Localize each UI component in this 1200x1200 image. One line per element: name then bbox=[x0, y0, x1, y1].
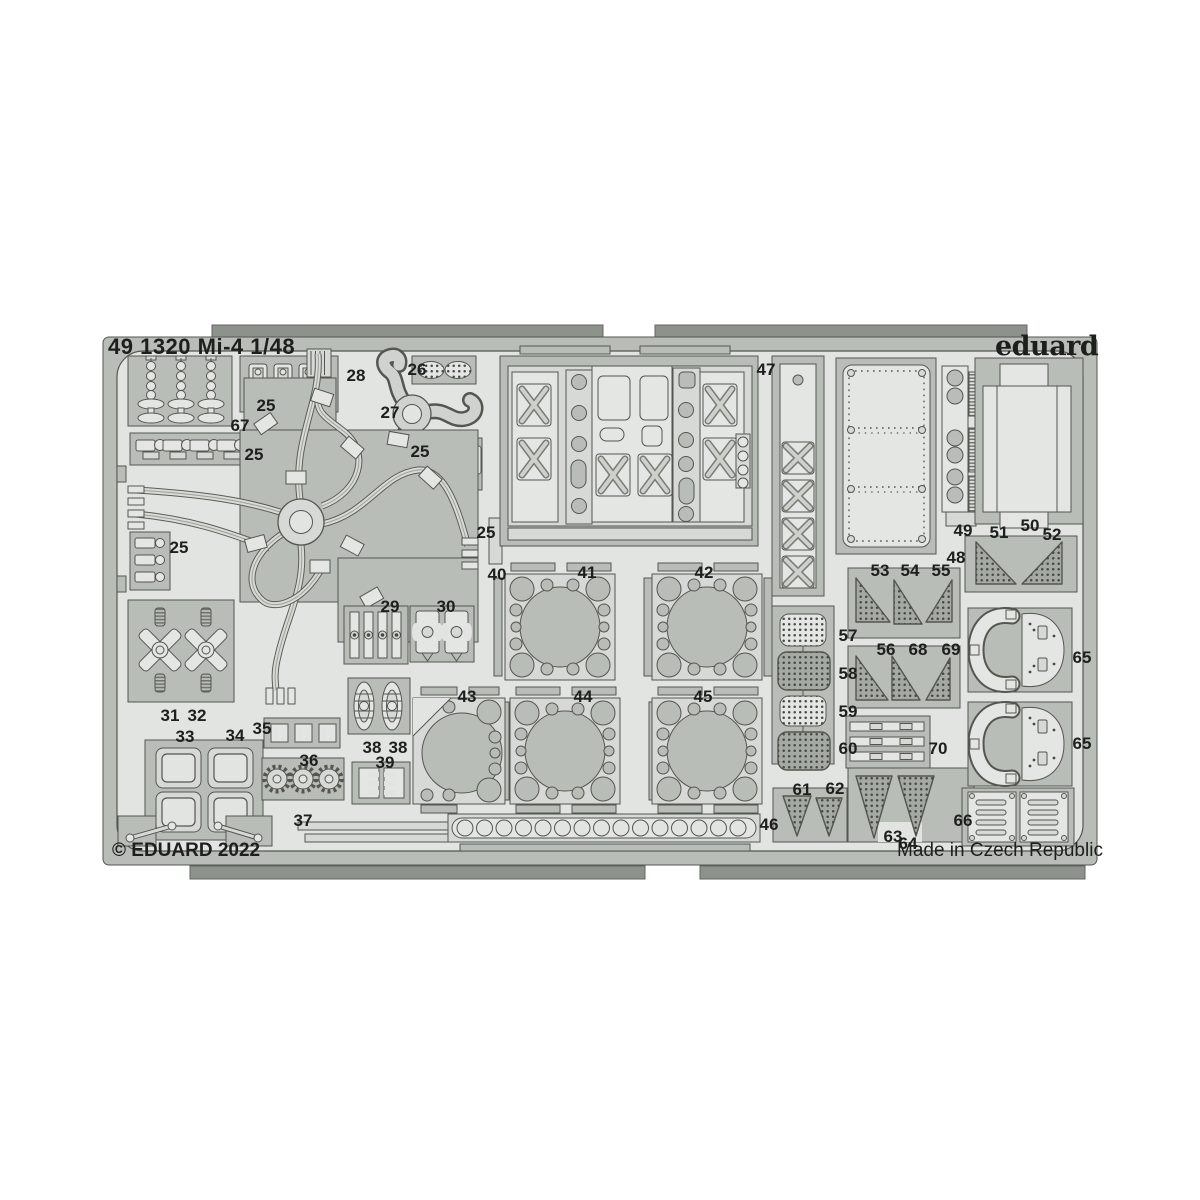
part-label-25: 25 bbox=[411, 442, 430, 462]
part-label-62: 62 bbox=[826, 779, 845, 799]
part-label-55: 55 bbox=[932, 561, 951, 581]
part-label-58: 58 bbox=[839, 664, 858, 684]
part-label-41: 41 bbox=[578, 563, 597, 583]
photo-etch-sheet: 49 1320 Mi-4 1/48 eduard © EDUARD 2022 M… bbox=[0, 0, 1200, 1200]
part-label-68: 68 bbox=[909, 640, 928, 660]
part-label-25: 25 bbox=[245, 445, 264, 465]
part-label-36: 36 bbox=[300, 751, 319, 771]
part-label-69: 69 bbox=[942, 640, 961, 660]
part-label-57: 57 bbox=[839, 626, 858, 646]
part-label-65: 65 bbox=[1073, 734, 1092, 754]
part-label-32: 32 bbox=[188, 706, 207, 726]
part-label-60: 60 bbox=[839, 739, 858, 759]
part-label-28: 28 bbox=[347, 366, 366, 386]
part-label-52: 52 bbox=[1043, 525, 1062, 545]
part-label-49: 49 bbox=[954, 521, 973, 541]
part-label-30: 30 bbox=[437, 597, 456, 617]
part-label-51: 51 bbox=[990, 523, 1009, 543]
part-label-25: 25 bbox=[170, 538, 189, 558]
part-label-59: 59 bbox=[839, 702, 858, 722]
part-label-56: 56 bbox=[877, 640, 896, 660]
part-label-47: 47 bbox=[757, 360, 776, 380]
part-label-35: 35 bbox=[253, 719, 272, 739]
part-label-25: 25 bbox=[257, 396, 276, 416]
part-label-54: 54 bbox=[901, 561, 920, 581]
part-label-34: 34 bbox=[226, 726, 245, 746]
part-label-64: 64 bbox=[899, 834, 918, 854]
part-label-70: 70 bbox=[929, 739, 948, 759]
part-label-25: 25 bbox=[477, 523, 496, 543]
part-label-42: 42 bbox=[695, 563, 714, 583]
part-label-31: 31 bbox=[161, 706, 180, 726]
part-label-65: 65 bbox=[1073, 648, 1092, 668]
part-label-66: 66 bbox=[954, 811, 973, 831]
part-label-45: 45 bbox=[694, 687, 713, 707]
part-label-40: 40 bbox=[488, 565, 507, 585]
part-label-67: 67 bbox=[231, 416, 250, 436]
part-label-39: 39 bbox=[376, 753, 395, 773]
part-label-50: 50 bbox=[1021, 516, 1040, 536]
label-layer: 6725252525252627282930313233343536373838… bbox=[0, 0, 1200, 1200]
part-label-29: 29 bbox=[381, 597, 400, 617]
part-label-26: 26 bbox=[408, 360, 427, 380]
part-label-37: 37 bbox=[294, 811, 313, 831]
part-label-27: 27 bbox=[381, 403, 400, 423]
part-label-61: 61 bbox=[793, 780, 812, 800]
part-label-33: 33 bbox=[176, 727, 195, 747]
part-label-46: 46 bbox=[760, 815, 779, 835]
part-label-53: 53 bbox=[871, 561, 890, 581]
part-label-43: 43 bbox=[458, 687, 477, 707]
part-label-44: 44 bbox=[574, 687, 593, 707]
